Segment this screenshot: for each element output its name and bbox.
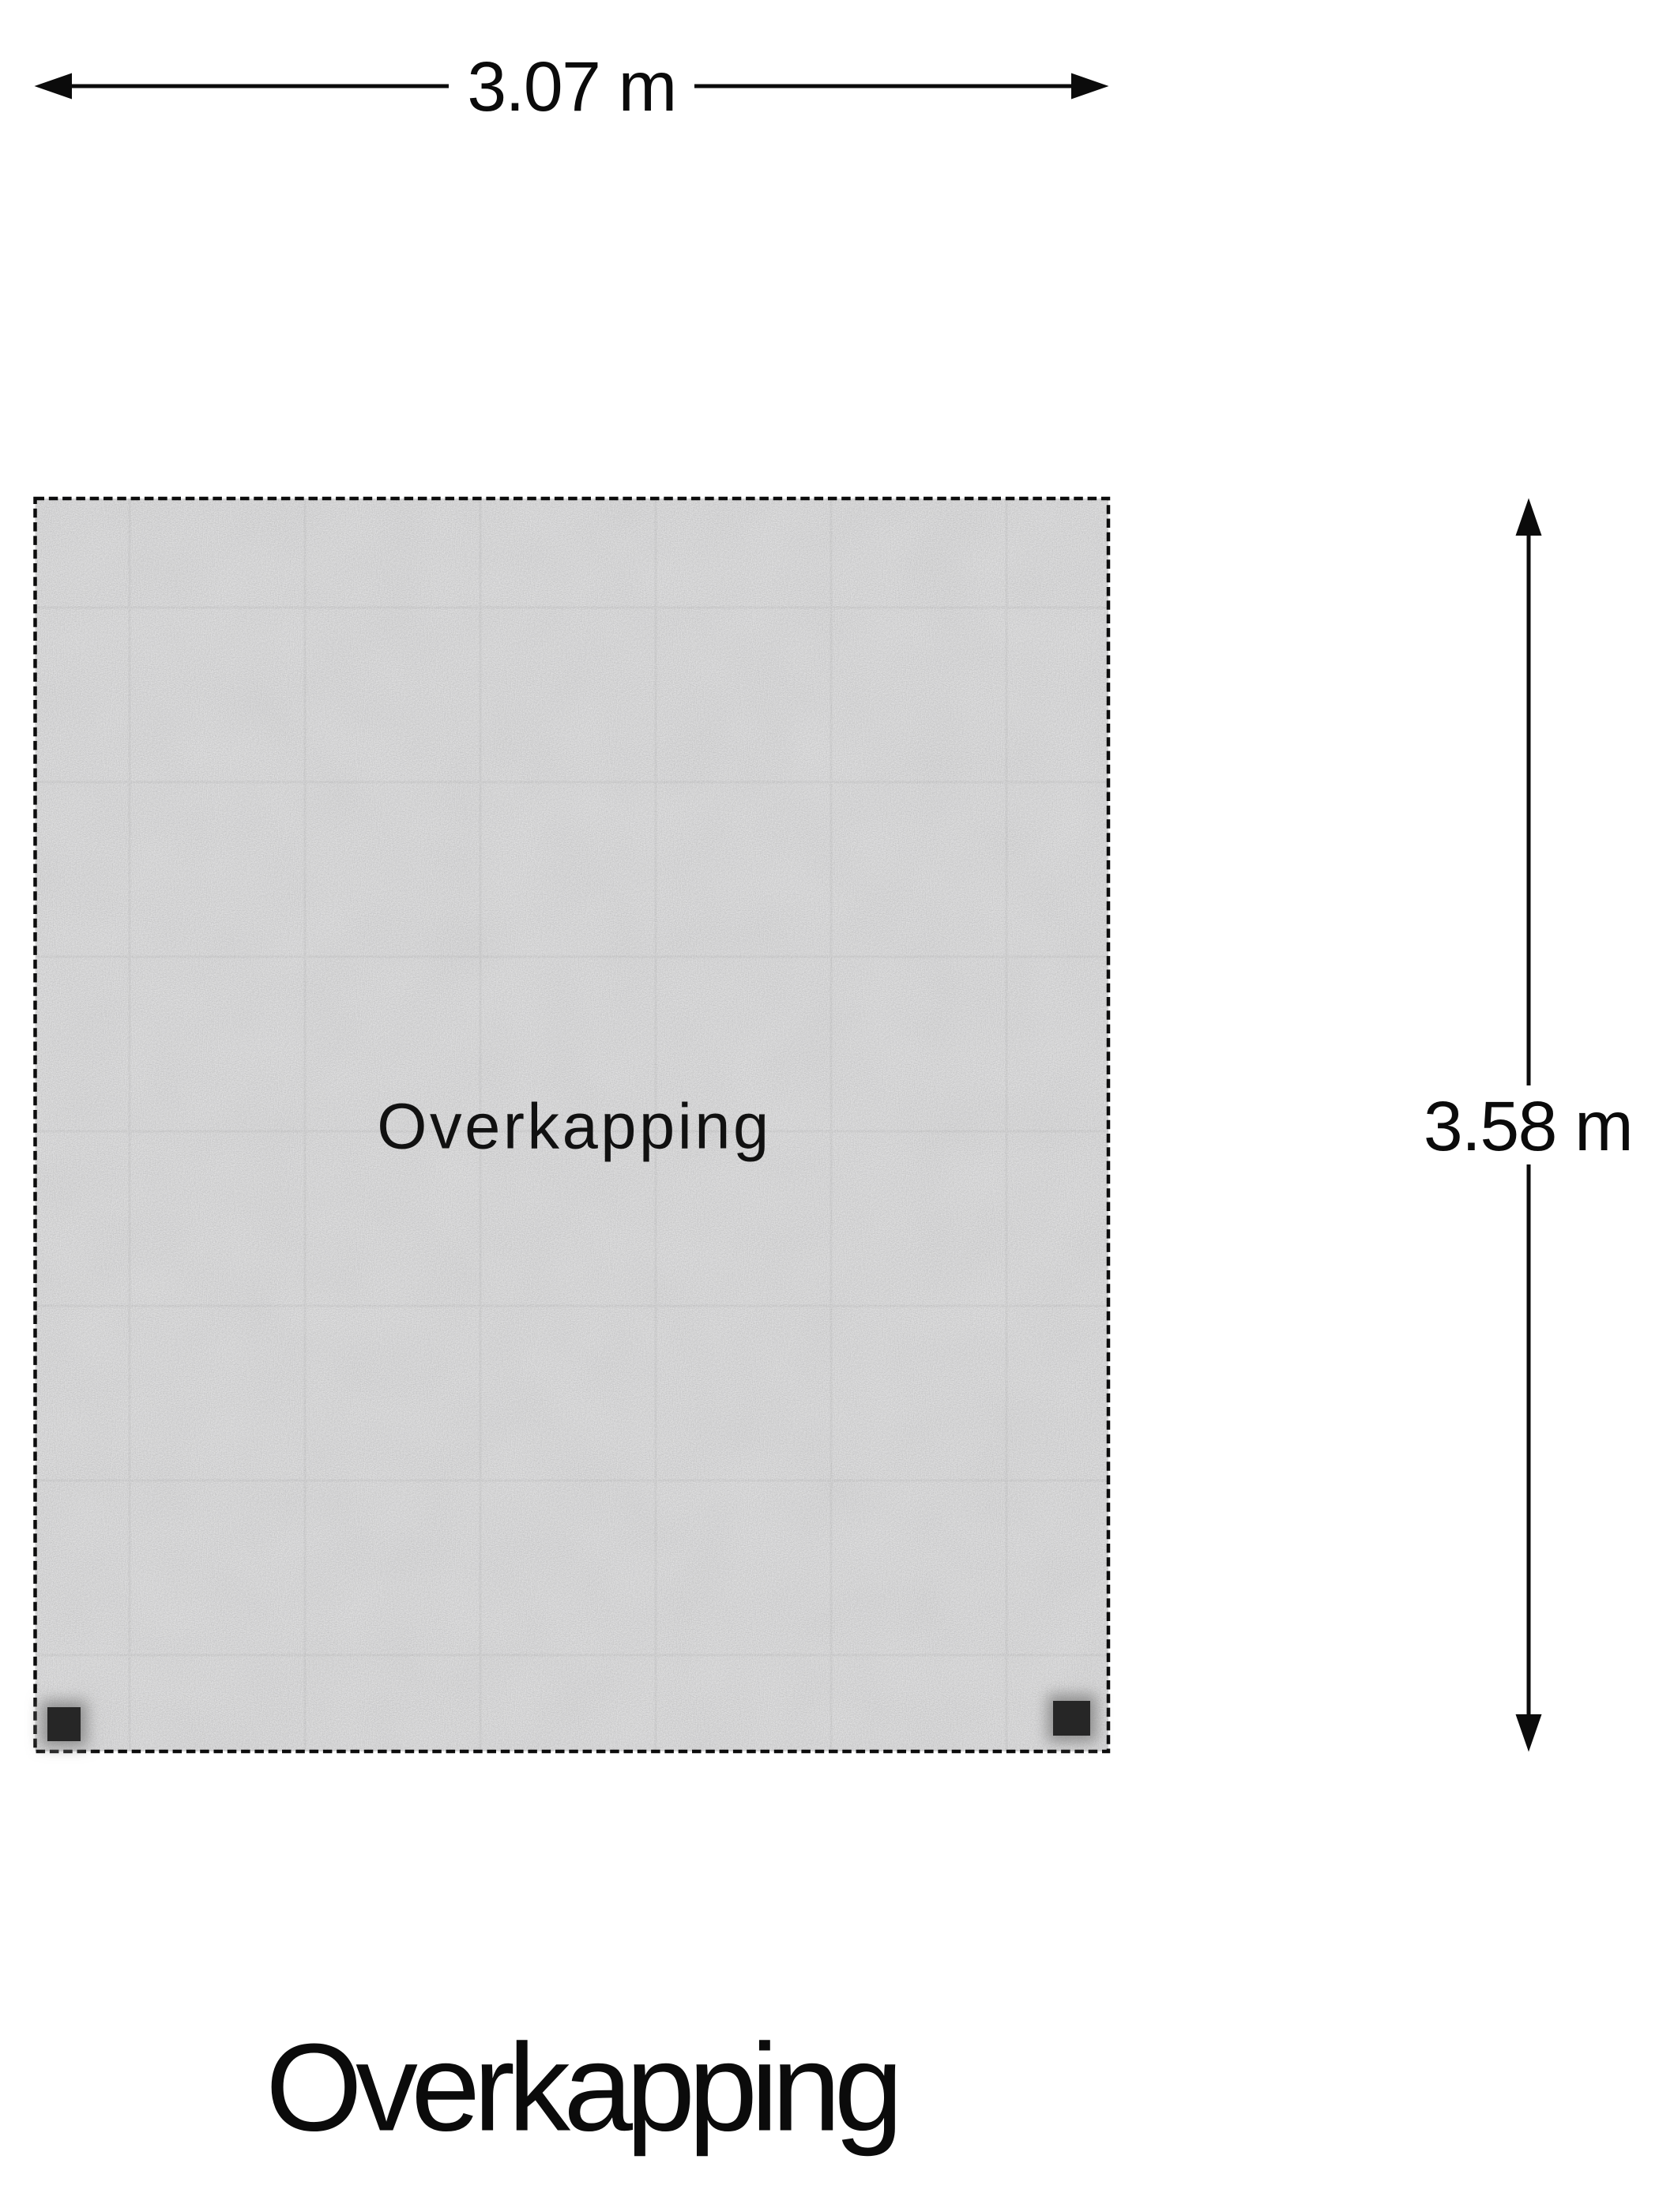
svg-text:3.07 m: 3.07 m xyxy=(467,47,675,126)
svg-text:Overkapping: Overkapping xyxy=(265,2018,897,2157)
svg-text:Overkapping: Overkapping xyxy=(377,1091,771,1163)
svg-text:3.58 m: 3.58 m xyxy=(1424,1086,1632,1165)
